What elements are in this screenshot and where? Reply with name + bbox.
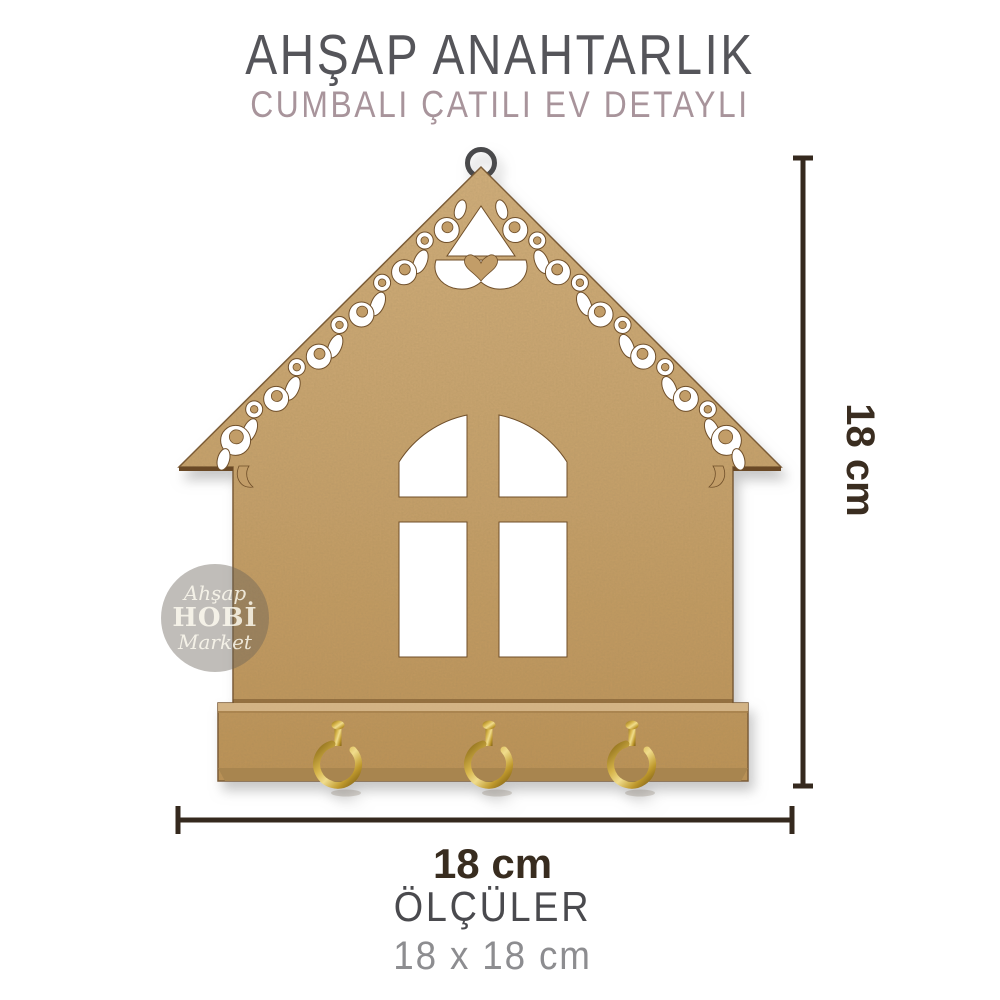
window-pane-bottom-left xyxy=(399,522,467,657)
watermark-top-text: Ahşap xyxy=(184,583,246,604)
product-image: AHŞAP ANAHTARLIK CUMBALI ÇATILI EV DETAY… xyxy=(0,0,1000,1000)
watermark-main-text: HOBİ xyxy=(172,604,257,632)
width-dimension-label: 18 cm xyxy=(0,840,985,888)
watermark-bottom-text: Market xyxy=(178,632,252,653)
ledge-bevel xyxy=(218,768,748,781)
dimension-line-horizontal xyxy=(178,806,792,834)
brand-watermark: Ahşap HOBİ Market xyxy=(161,564,269,672)
window-pane-bottom-right xyxy=(499,522,567,657)
height-dimension-label: 18 cm xyxy=(838,395,882,525)
dimension-line-vertical xyxy=(793,158,813,786)
key-holder-house xyxy=(170,150,790,797)
